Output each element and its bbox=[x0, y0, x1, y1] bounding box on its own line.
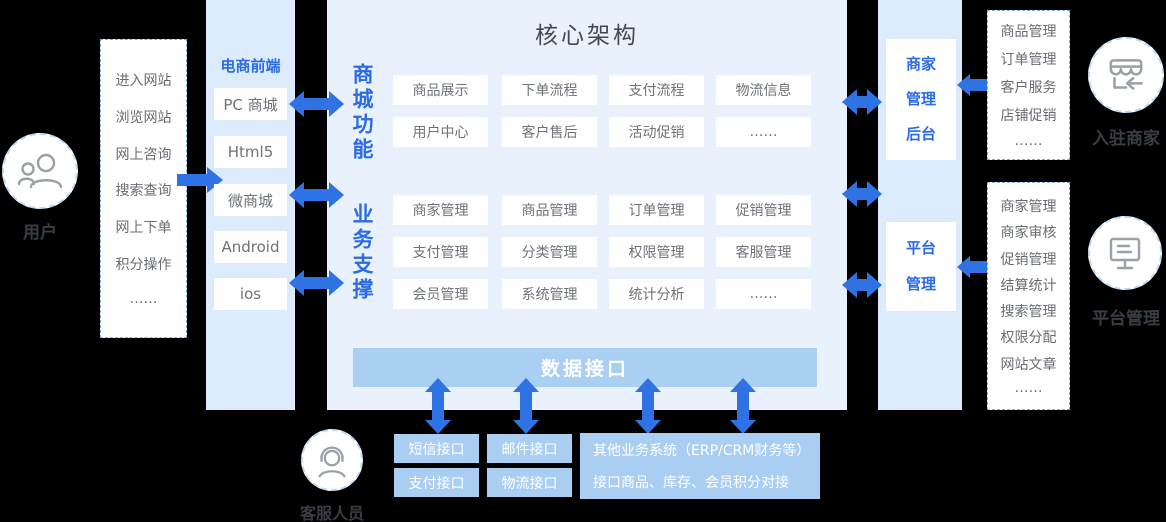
list-item: 结算统计 bbox=[1001, 275, 1057, 295]
biz-item-box: 分类管理 bbox=[502, 237, 597, 267]
biz-item-box: 订单管理 bbox=[609, 195, 704, 225]
biz-item-box: …… bbox=[716, 279, 811, 309]
list-item: 订单管理 bbox=[1001, 49, 1057, 69]
double-arrow-vertical bbox=[635, 378, 661, 434]
interface-box: 短信接口 bbox=[394, 434, 479, 463]
platform-icon-label: 平台管理 bbox=[1086, 304, 1166, 329]
list-item: 积分操作 bbox=[116, 254, 172, 274]
biz-item-box: 促销管理 bbox=[716, 195, 811, 225]
architecture-diagram: 用户 进入网站 浏览网站 网上咨询 搜索查询 网上下单 积分操作 …… 电商前端… bbox=[0, 0, 1166, 522]
list-item: 客户服务 bbox=[1001, 77, 1057, 97]
frontend-label: 电商前端 bbox=[206, 55, 295, 76]
storefront-icon bbox=[1088, 37, 1164, 113]
user-actions-list: 进入网站 浏览网站 网上咨询 搜索查询 网上下单 积分操作 …… bbox=[100, 39, 187, 338]
double-arrow bbox=[842, 272, 882, 298]
platform-admin-box: 平台 管理 bbox=[886, 222, 956, 311]
double-arrow bbox=[289, 182, 344, 208]
merchant-admin-box: 商家 管理 后台 bbox=[886, 39, 956, 160]
double-arrow-vertical bbox=[425, 378, 451, 434]
mall-item-box: 客户售后 bbox=[502, 117, 597, 147]
list-item: 店铺促销 bbox=[1001, 105, 1057, 125]
list-item: 搜索管理 bbox=[1001, 301, 1057, 321]
list-item: 促销管理 bbox=[1001, 249, 1057, 269]
list-item: 商品管理 bbox=[1001, 21, 1057, 41]
biz-item-box: 客服管理 bbox=[716, 237, 811, 267]
biz-item-box: 商家管理 bbox=[393, 195, 488, 225]
headset-icon bbox=[301, 429, 363, 491]
mall-item-box: 下单流程 bbox=[502, 75, 597, 105]
other-systems-box: 其他业务系统（ERP/CRM财务等） 接口商品、库存、会员积分对接 bbox=[580, 433, 820, 499]
merchant-functions-list: 商品管理 订单管理 客户服务 店铺促销 …… bbox=[987, 10, 1070, 160]
biz-item-box: 统计分析 bbox=[609, 279, 704, 309]
double-arrow-vertical bbox=[513, 378, 539, 434]
other-systems-line2: 接口商品、库存、会员积分对接 bbox=[593, 472, 820, 492]
monitor-icon bbox=[1088, 216, 1162, 290]
interface-box: 邮件接口 bbox=[487, 434, 572, 463]
channel-box: Android bbox=[214, 231, 287, 263]
list-item: 进入网站 bbox=[116, 70, 172, 90]
double-arrow-vertical bbox=[730, 378, 756, 434]
list-item: …… bbox=[1015, 133, 1043, 149]
double-arrow bbox=[289, 270, 344, 296]
biz-item-box: 支付管理 bbox=[393, 237, 488, 267]
list-item: …… bbox=[130, 291, 158, 307]
list-item: 商家审核 bbox=[1001, 222, 1057, 242]
interface-box: 物流接口 bbox=[487, 468, 572, 497]
biz-item-box: 商品管理 bbox=[502, 195, 597, 225]
mall-item-box: 商品展示 bbox=[393, 75, 488, 105]
biz-section-label: 业务支撑 bbox=[350, 203, 374, 303]
mall-item-box: 物流信息 bbox=[716, 75, 811, 105]
list-item: 搜索查询 bbox=[116, 180, 172, 200]
double-arrow bbox=[842, 89, 882, 115]
mall-item-box: 活动促销 bbox=[609, 117, 704, 147]
left-arrow bbox=[957, 256, 990, 278]
mall-section-label: 商城功能 bbox=[350, 63, 374, 163]
biz-item-box: 会员管理 bbox=[393, 279, 488, 309]
list-item: …… bbox=[1015, 380, 1043, 396]
core-title: 核心架构 bbox=[327, 16, 847, 50]
list-item: 浏览网站 bbox=[116, 107, 172, 127]
list-item: 网上咨询 bbox=[116, 144, 172, 164]
list-item: 商家管理 bbox=[1001, 196, 1057, 216]
interface-box: 支付接口 bbox=[394, 468, 479, 497]
channel-box: ios bbox=[214, 278, 287, 310]
mall-item-box: 支付流程 bbox=[609, 75, 704, 105]
list-item: 网站文章 bbox=[1001, 354, 1057, 374]
channel-box: Html5 bbox=[214, 136, 287, 168]
channel-box: PC 商城 bbox=[214, 88, 287, 120]
merchant-icon-label: 入驻商家 bbox=[1086, 124, 1166, 149]
mall-item-box: …… bbox=[716, 117, 811, 147]
list-item: 网上下单 bbox=[116, 217, 172, 237]
biz-item-box: 权限管理 bbox=[609, 237, 704, 267]
user-icon bbox=[2, 133, 78, 209]
service-label: 客服人员 bbox=[292, 500, 372, 522]
user-label: 用户 bbox=[2, 218, 78, 243]
double-arrow bbox=[289, 91, 344, 117]
double-arrow bbox=[842, 181, 882, 207]
left-arrow bbox=[957, 74, 990, 96]
list-item: 权限分配 bbox=[1001, 327, 1057, 347]
other-systems-line1: 其他业务系统（ERP/CRM财务等） bbox=[593, 440, 820, 460]
biz-item-box: 系统管理 bbox=[502, 279, 597, 309]
channel-box: 微商城 bbox=[214, 184, 287, 216]
platform-functions-list: 商家管理 商家审核 促销管理 结算统计 搜索管理 权限分配 网站文章 …… bbox=[987, 182, 1070, 410]
mall-item-box: 用户中心 bbox=[393, 117, 488, 147]
